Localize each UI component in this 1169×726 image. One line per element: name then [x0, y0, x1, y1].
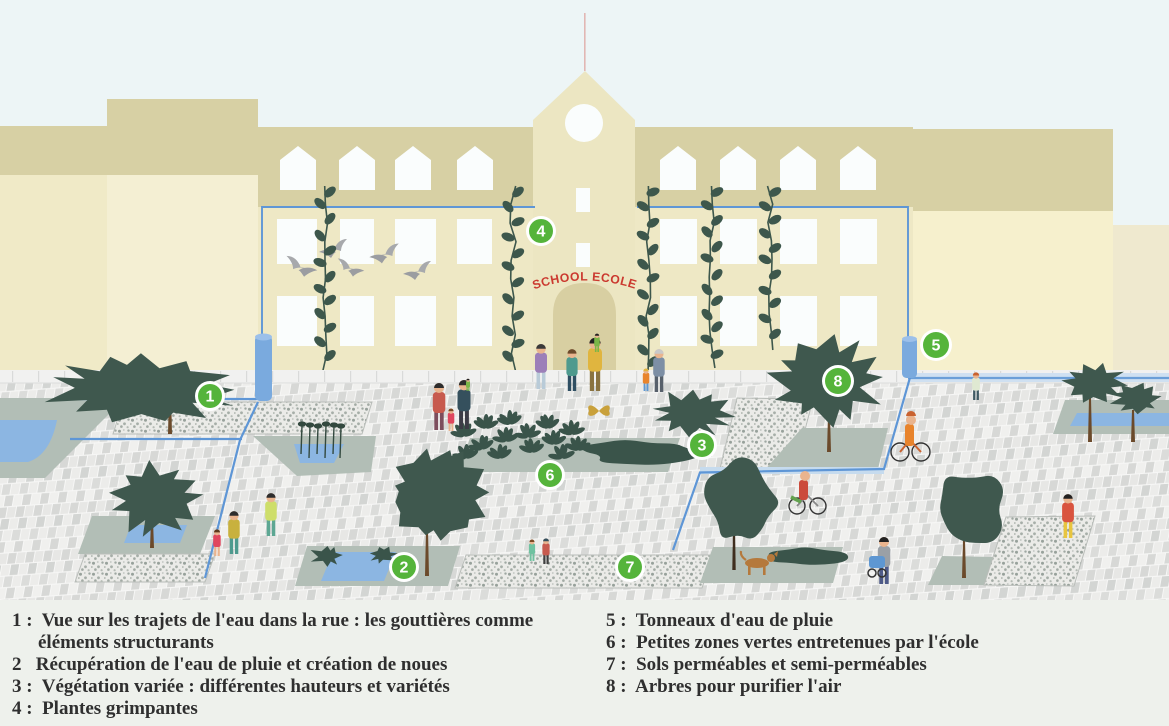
- svg-text:3 : Végétation variée : diffé: 3 : Végétation variée : différentes haut…: [12, 676, 450, 697]
- svg-text:2: 2: [400, 560, 409, 577]
- svg-text:1: 1: [206, 389, 215, 406]
- svg-text:6: 6: [546, 468, 555, 485]
- svg-text:8: 8: [834, 374, 843, 391]
- svg-text:6 : Petites zones vertes entr: 6 : Petites zones vertes entretenues par…: [606, 632, 979, 653]
- svg-text:7: 7: [626, 560, 635, 577]
- svg-text:5: 5: [932, 338, 941, 355]
- svg-text:1 : Vue sur les trajets de l': 1 : Vue sur les trajets de l'eau dans la…: [12, 610, 533, 631]
- svg-text:éléments structurants: éléments structurants: [38, 632, 214, 653]
- svg-text:2 Récupération de l'eau de p: 2 Récupération de l'eau de pluie et créa…: [12, 654, 447, 675]
- svg-text:8 : Arbres pour purifier l'ai: 8 : Arbres pour purifier l'air: [606, 676, 842, 697]
- svg-text:3: 3: [698, 438, 707, 455]
- svg-text:4: 4: [537, 224, 546, 241]
- svg-text:7 : Sols perméables et semi-p: 7 : Sols perméables et semi-perméables: [606, 654, 927, 675]
- svg-text:4 : Plantes grimpantes: 4 : Plantes grimpantes: [12, 698, 198, 719]
- svg-text:5 : Tonneaux d'eau de pluie: 5 : Tonneaux d'eau de pluie: [606, 610, 833, 631]
